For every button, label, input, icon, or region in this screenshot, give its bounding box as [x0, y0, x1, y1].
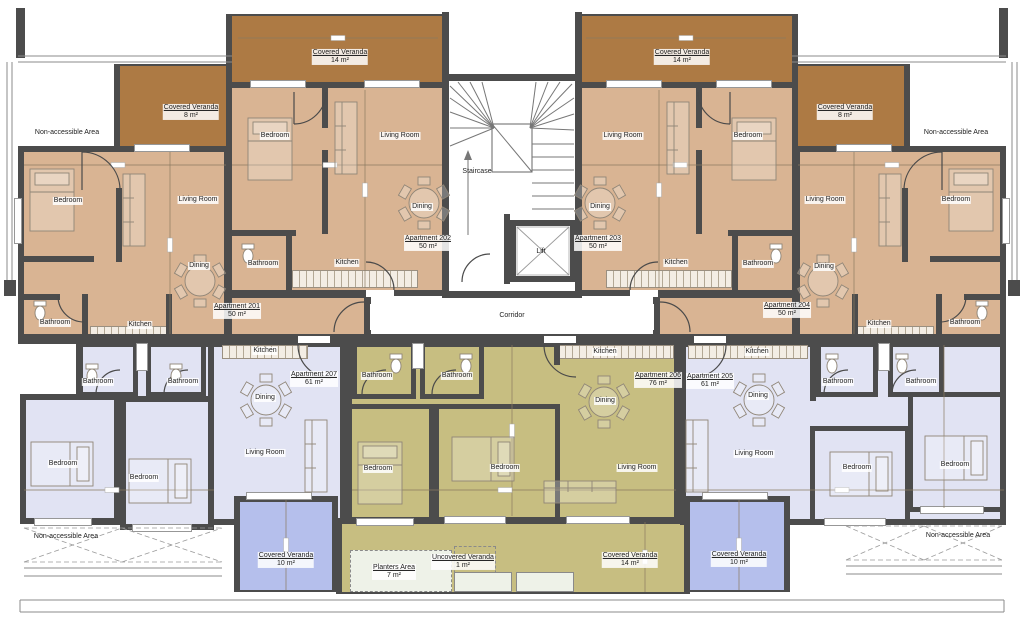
apartment-205-bathroom1 — [816, 341, 878, 397]
veranda-207-label: Covered Veranda 10 m² — [258, 552, 314, 568]
window — [716, 80, 772, 88]
apt204-bathroom-label: Bathroom — [949, 319, 981, 327]
door-opening — [694, 336, 726, 343]
apt206-dining-label: Dining — [594, 397, 616, 405]
window — [836, 144, 892, 152]
wall-segment — [442, 12, 449, 78]
planter-box — [516, 572, 574, 592]
wall-segment — [554, 341, 560, 365]
sliding-door — [702, 492, 768, 500]
kitchen-counter — [606, 270, 732, 288]
window — [356, 518, 414, 526]
apartment-205-bedroom1 — [810, 426, 910, 524]
planters-area-size: 7 m² — [373, 572, 415, 580]
apt205-bathroom1-label: Bathroom — [822, 378, 854, 386]
door-opening — [366, 290, 394, 297]
apartment-207-bathroom1 — [78, 341, 138, 397]
apt203-dining-label: Dining — [589, 203, 611, 211]
veranda-203-title: Covered Veranda — [655, 49, 709, 57]
wall-segment — [16, 8, 25, 58]
planters-area-title: Planters Area — [373, 564, 415, 572]
apartment-204-area — [794, 146, 1006, 344]
apt203-size: 50 m² — [575, 243, 621, 251]
wall-segment — [964, 294, 1000, 300]
veranda-202-label: Covered Veranda 14 m² — [312, 49, 368, 65]
window — [132, 524, 192, 532]
apt203-living-label: Living Room — [603, 132, 644, 140]
apt207-size: 61 m² — [291, 379, 337, 387]
apt201-kitchen-label: Kitchen — [127, 321, 152, 329]
planters-area-label: Planters Area 7 m² — [372, 564, 416, 580]
door-opening — [544, 336, 576, 343]
sliding-door — [246, 492, 312, 500]
apt202-living-label: Living Room — [380, 132, 421, 140]
veranda-205-size: 10 m² — [712, 559, 766, 567]
floor-plan: Covered Veranda 14 m² Covered Veranda 14… — [0, 0, 1024, 629]
kitchen-counter — [292, 270, 418, 288]
wall-segment — [208, 341, 214, 401]
apt201-living-label: Living Room — [178, 196, 219, 204]
apt207-bathroom1-label: Bathroom — [82, 378, 114, 386]
uncovered-veranda-title: Uncovered Veranda — [432, 554, 494, 562]
veranda-206-title: Covered Veranda — [603, 552, 657, 560]
non-accessible-bottom-left: Non-accessible Area — [33, 533, 99, 541]
door-opening — [298, 336, 330, 343]
door-opening — [630, 290, 658, 297]
wall-segment — [24, 256, 94, 262]
window — [920, 506, 984, 514]
window — [364, 80, 420, 88]
apt201-name-label: Apartment 201 50 m² — [213, 303, 261, 319]
apt207-bathroom2-label: Bathroom — [167, 378, 199, 386]
apt203-bathroom-label: Bathroom — [742, 260, 774, 268]
apt204-bedroom-label: Bedroom — [941, 196, 971, 204]
wall-segment — [696, 150, 702, 234]
apt201-size: 50 m² — [214, 311, 260, 319]
window — [14, 198, 22, 244]
uncovered-veranda-size: 1 m² — [432, 562, 494, 570]
apt206-kitchen-label: Kitchen — [592, 348, 617, 356]
wall-segment — [504, 214, 510, 284]
veranda-201-size: 8 m² — [164, 112, 218, 120]
uncovered-veranda-label: Uncovered Veranda 1 m² — [431, 554, 495, 570]
apt204-name-label: Apartment 204 50 m² — [763, 302, 811, 318]
wall-segment — [322, 88, 328, 128]
veranda-206-size: 14 m² — [603, 560, 657, 568]
apartment-205-bedroom2 — [908, 392, 1006, 512]
window — [606, 80, 662, 88]
wall-segment — [696, 88, 702, 128]
apt206-bathroom1-label: Bathroom — [361, 372, 393, 380]
window — [250, 80, 306, 88]
veranda-207-size: 10 m² — [259, 560, 313, 568]
apt203-name: Apartment 203 — [575, 235, 621, 243]
apt202-name: Apartment 202 — [405, 235, 451, 243]
apt205-bedroom1-label: Bedroom — [842, 464, 872, 472]
veranda-205-area — [684, 496, 790, 592]
apt205-size: 61 m² — [687, 381, 733, 389]
staircase-label: Staircase — [461, 168, 492, 176]
apt205-kitchen-label: Kitchen — [744, 348, 769, 356]
apt204-kitchen-label: Kitchen — [866, 320, 891, 328]
wall-segment — [4, 280, 16, 296]
veranda-202-title: Covered Veranda — [313, 49, 367, 57]
veranda-204-title: Covered Veranda — [818, 104, 872, 112]
apt207-bedroom1-label: Bedroom — [48, 460, 78, 468]
window — [1002, 198, 1010, 244]
veranda-204-size: 8 m² — [818, 112, 872, 120]
wall-segment — [322, 150, 328, 234]
apartment-207-bedroom2 — [120, 396, 214, 530]
veranda-204-label: Covered Veranda 8 m² — [817, 104, 873, 120]
apt205-dining-label: Dining — [747, 392, 769, 400]
apt206-bedroom2-label: Bedroom — [490, 464, 520, 472]
planter-box — [454, 572, 512, 592]
apartment-207-bathroom2 — [146, 341, 206, 397]
apartment-205-bathroom2 — [888, 341, 944, 397]
wall-segment — [116, 188, 122, 262]
wall-segment — [930, 256, 1000, 262]
wall-segment — [18, 334, 1006, 343]
apt205-name-label: Apartment 205 61 m² — [686, 373, 734, 389]
apt202-dining-label: Dining — [411, 203, 433, 211]
apt207-name-label: Apartment 207 61 m² — [290, 371, 338, 387]
apt207-kitchen-label: Kitchen — [252, 347, 277, 355]
veranda-203-label: Covered Veranda 14 m² — [654, 49, 710, 65]
apt201-bathroom-label: Bathroom — [39, 319, 71, 327]
apt207-bedroom2-label: Bedroom — [129, 474, 159, 482]
wall-segment — [902, 188, 908, 262]
apt204-size: 50 m² — [764, 310, 810, 318]
sliding-door — [566, 516, 630, 524]
apt207-living-label: Living Room — [245, 449, 286, 457]
apt203-name-label: Apartment 203 50 m² — [574, 235, 622, 251]
non-accessible-bottom-right: Non-accessible Area — [925, 532, 991, 540]
window — [824, 518, 886, 526]
apt207-dining-label: Dining — [254, 394, 276, 402]
wall-segment — [24, 294, 60, 300]
veranda-207-title: Covered Veranda — [259, 552, 313, 560]
service-shaft — [878, 343, 890, 371]
apt206-living-label: Living Room — [617, 464, 658, 472]
apt203-kitchen-label: Kitchen — [663, 259, 688, 267]
veranda-203-size: 14 m² — [655, 57, 709, 65]
apt202-bedroom-label: Bedroom — [260, 132, 290, 140]
apt205-bedroom2-label: Bedroom — [940, 461, 970, 469]
window — [34, 518, 92, 526]
apt206-name-label: Apartment 206 76 m² — [634, 372, 682, 388]
apt206-name: Apartment 206 — [635, 372, 681, 380]
apt203-bedroom-label: Bedroom — [733, 132, 763, 140]
wall-segment — [810, 341, 816, 401]
apt207-name: Apartment 207 — [291, 371, 337, 379]
apt201-bedroom-label: Bedroom — [53, 197, 83, 205]
wall-segment — [286, 236, 292, 296]
apt206-bedroom1-label: Bedroom — [363, 465, 393, 473]
lift-label: Lift — [535, 248, 546, 256]
apt205-bathroom2-label: Bathroom — [905, 378, 937, 386]
apt206-bathroom2-label: Bathroom — [441, 372, 473, 380]
apt204-dining-label: Dining — [813, 263, 835, 271]
wall-segment — [575, 12, 582, 78]
apt202-size: 50 m² — [405, 243, 451, 251]
veranda-201-title: Covered Veranda — [164, 104, 218, 112]
service-shaft — [412, 343, 424, 369]
apartment-201-area — [18, 146, 230, 344]
veranda-202-size: 14 m² — [313, 57, 367, 65]
non-accessible-top-left: Non-accessible Area — [34, 129, 100, 137]
apt204-name: Apartment 204 — [764, 302, 810, 310]
apt201-name: Apartment 201 — [214, 303, 260, 311]
non-accessible-top-right: Non-accessible Area — [923, 129, 989, 137]
apt204-living-label: Living Room — [805, 196, 846, 204]
apt206-size: 76 m² — [635, 380, 681, 388]
apt205-living-label: Living Room — [734, 450, 775, 458]
apartment-206-bathroom1 — [352, 341, 416, 399]
window — [134, 144, 190, 152]
window — [444, 516, 506, 524]
veranda-207-area — [234, 496, 338, 592]
apartment-206-bathroom2 — [420, 341, 484, 399]
service-shaft — [136, 343, 148, 371]
wall-segment — [1008, 280, 1020, 296]
apt205-name: Apartment 205 — [687, 373, 733, 381]
veranda-205-title: Covered Veranda — [712, 551, 766, 559]
apt202-bathroom-label: Bathroom — [247, 260, 279, 268]
apt202-name-label: Apartment 202 50 m² — [404, 235, 452, 251]
apt201-dining-label: Dining — [188, 262, 210, 270]
wall-segment — [999, 8, 1008, 58]
wall-segment — [732, 236, 738, 296]
veranda-205-label: Covered Veranda 10 m² — [711, 551, 767, 567]
apt202-kitchen-label: Kitchen — [334, 259, 359, 267]
corridor-label: Corridor — [498, 312, 525, 320]
veranda-201-label: Covered Veranda 8 m² — [163, 104, 219, 120]
veranda-206-label: Covered Veranda 14 m² — [602, 552, 658, 568]
